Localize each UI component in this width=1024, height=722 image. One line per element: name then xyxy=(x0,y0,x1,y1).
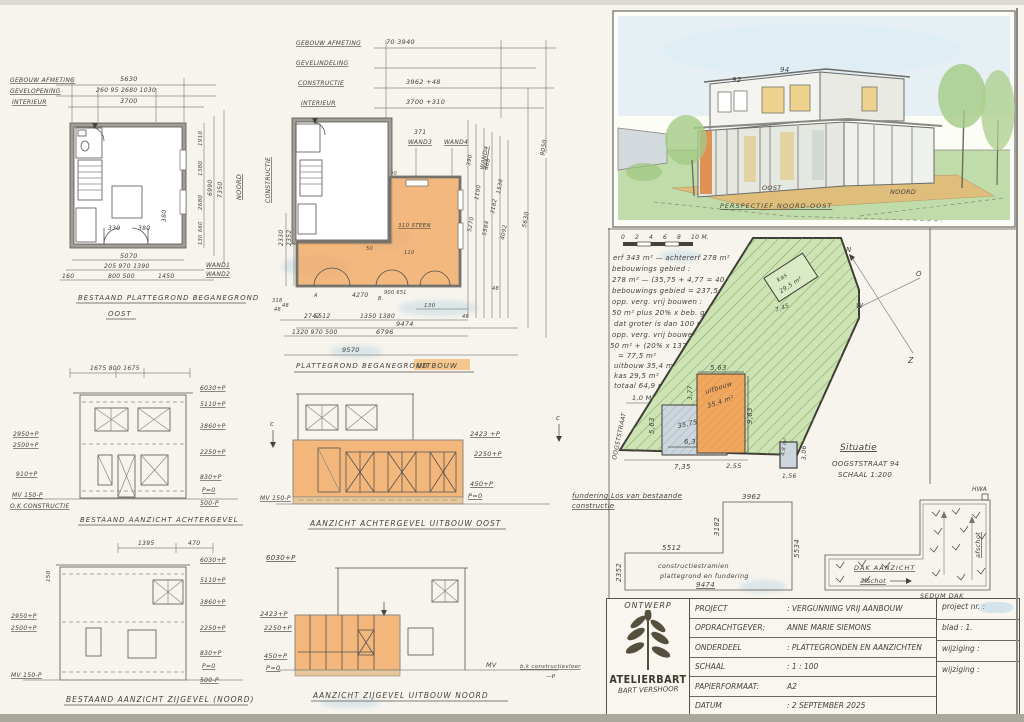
site-title: Situatie xyxy=(840,443,877,453)
dim: 1538 xyxy=(496,178,505,194)
top-dim: 1395 xyxy=(138,540,154,547)
level-label: 500-P xyxy=(200,500,219,507)
plan-uitbouw-beganegrond: GEBOUW AFMETING 70 3940 GEVELINDELING CO… xyxy=(256,28,562,380)
calc-line: erf 343 m² — achtererf 278 m² xyxy=(613,254,730,262)
dim: 1350 1380 xyxy=(360,313,395,320)
level-label: 910+P xyxy=(16,471,38,478)
elevC-left-labels: 2950+P 2500+P MV 150-P xyxy=(11,613,42,679)
dim: 5584 xyxy=(482,220,491,236)
tb-wijziging-1: wijziging : xyxy=(937,641,1019,662)
calc-line: uitbouw 35,4 m² xyxy=(614,362,676,370)
dim-value: 3700 +310 xyxy=(406,98,445,106)
tb-label: PROJECT xyxy=(695,604,787,613)
inner-dim: 380 xyxy=(138,225,150,232)
construction-note2: —P xyxy=(546,674,556,680)
sheet-bottom-edge xyxy=(0,714,1024,722)
dim: 660 xyxy=(198,222,204,232)
dim: 48 xyxy=(282,303,289,309)
section-mark-c: c xyxy=(556,414,560,422)
perspective-caption: PERSPECTIEF NOORD-OOST xyxy=(720,202,832,210)
dim: 150 xyxy=(46,570,52,582)
dim: 1450 xyxy=(158,273,174,280)
dim: 3,77 xyxy=(687,385,694,400)
calc-line: kas 29,5 m² xyxy=(614,372,659,380)
level-label: 2250+P xyxy=(474,450,502,458)
calc-line: 278 m² — (35,75 + 4,77 = 40,5) xyxy=(612,276,735,284)
elevB-uitbouw xyxy=(276,440,550,504)
mv-label: MV xyxy=(486,661,497,669)
dim: 7350 xyxy=(217,182,224,198)
dim: 318 xyxy=(272,298,282,304)
ontwerp-label: ONTWERP xyxy=(624,601,672,610)
dim: 9,63 xyxy=(746,407,754,424)
level-label: MV 150-P xyxy=(12,492,43,499)
tb-row-onderdeel: ONDERDEEL : PLATTEGRONDEN EN AANZICHTEN xyxy=(690,638,936,658)
compass-w: W xyxy=(856,302,864,310)
planA-subtitle: OOST xyxy=(108,310,132,318)
dim-row-label: INTERIEUR xyxy=(301,100,336,107)
ground-label-oost: OOST xyxy=(762,184,782,192)
construction-label: CONSTRUCTIE xyxy=(265,157,272,203)
dim: 5070 xyxy=(120,252,138,260)
dim-row-label: INTERIEUR xyxy=(12,99,47,106)
dim: 48 xyxy=(462,314,469,320)
dim: 900 651 xyxy=(384,290,407,296)
dim: 130 xyxy=(424,303,436,309)
level-label: 2250+P xyxy=(264,624,292,632)
elevD-left-labels: 6030+P 2423+P 2250+P 450+P P=0 xyxy=(260,554,296,672)
section-mark-c: c xyxy=(270,420,274,428)
fundering-inner: constructiestramien xyxy=(658,562,729,570)
scale-tick: 4 xyxy=(649,234,653,241)
level-label: 500-P xyxy=(200,677,219,684)
level-label: 2500+P xyxy=(11,625,37,632)
elevD-building xyxy=(278,568,558,676)
tb-value: ANNE MARIE SIEMONS xyxy=(787,623,871,632)
street-label: OOGSTSTRAAT xyxy=(611,411,628,460)
level-label: 6030+P xyxy=(200,557,226,564)
elevA-right-labels: 6030+P 5110+P 3860+P 2250+P 830+P P=0 50… xyxy=(200,385,226,507)
dim: 5534 xyxy=(793,539,801,558)
tb-label: SCHAAL xyxy=(695,662,787,671)
dim-row-label: CONSTRUCTIE xyxy=(298,80,344,87)
dim: 9570 xyxy=(342,346,360,354)
dim: 130 xyxy=(198,235,204,245)
level-label: 6030+P xyxy=(200,385,226,392)
sheet-top-edge xyxy=(0,0,1024,5)
dim: 371 xyxy=(414,129,426,136)
level-label: 2423+P xyxy=(260,610,288,618)
orientation-label: NOORD xyxy=(235,174,243,200)
tb-meta-label: wijziging : xyxy=(942,644,980,653)
dim: 1,56 xyxy=(782,473,797,480)
calc-line: opp. verg. vrij bouwen : xyxy=(612,298,702,306)
dim: 110 xyxy=(404,250,414,256)
tb-value: A2 xyxy=(787,682,797,691)
wall-label: WAND4 xyxy=(444,139,468,146)
atelier-brand-sub: BART VERSHOOR xyxy=(618,685,679,695)
site-caption: Situatie OOGSTSTRAAT 94 SCHAAL 1:200 xyxy=(832,443,899,479)
compass-z: Z xyxy=(907,356,914,365)
dim: 800 500 xyxy=(108,273,135,280)
dim: 5270 xyxy=(467,216,476,232)
dim: 9050 xyxy=(539,139,549,156)
level-label: 2423 +P xyxy=(470,430,500,438)
scale-tick: 6 xyxy=(663,234,667,241)
level-label: 2950+P xyxy=(11,613,37,620)
dim: 2352 xyxy=(615,563,623,582)
level-label: 5110+P xyxy=(200,577,226,584)
fundering-note: constructie xyxy=(572,502,614,510)
dim: 6796 xyxy=(376,328,394,336)
level-label: 450+P xyxy=(264,652,287,660)
sheet-right-edge xyxy=(1016,8,1018,714)
house-number: 94 xyxy=(780,66,790,74)
elevation-bestaand-zijgevel: 1395 470 150 2950+P 2500+P MV 150-P 6030… xyxy=(8,532,258,714)
dim: 48 xyxy=(274,307,281,313)
wall-label: WAND3 xyxy=(408,139,432,146)
level-label: P=0 xyxy=(468,492,482,500)
compass-n: N xyxy=(846,246,852,254)
construction-note: b.k constructievloer xyxy=(520,664,581,670)
ground-label-noord: NOORD xyxy=(890,188,916,196)
dim-row-label: GEBOUW AFMETING xyxy=(296,40,361,47)
level-label: 3860+P xyxy=(200,599,226,606)
north-arrow-icon xyxy=(849,254,855,261)
tb-project-nr: project nr. : xyxy=(937,599,1019,620)
tb-row-datum: DATUM : 2 SEPTEMBER 2025 xyxy=(690,697,936,716)
level-label: 2250+P xyxy=(200,449,226,456)
dim: 205 970 1390 xyxy=(104,263,150,270)
dim: 48 xyxy=(492,286,499,292)
planA-bottom-dims: 5070 205 970 1390 160 800 500 1450 xyxy=(60,252,214,280)
dim: 4092 xyxy=(500,224,509,240)
level-label: 2250+P xyxy=(200,625,226,632)
scale-tick: 10 M. xyxy=(691,234,709,241)
wall-label: WAND2 xyxy=(206,271,230,278)
roof-outline xyxy=(825,500,990,590)
scale-tick: 0 xyxy=(621,234,625,241)
tb-meta-label: blad : 1. xyxy=(942,623,973,632)
level-label: P=0 xyxy=(266,664,280,672)
dim: 1320 970 500 xyxy=(292,329,338,336)
dim: 5630 xyxy=(521,211,531,228)
scale-bar: 0 2 4 6 8 10 M. xyxy=(621,234,709,246)
tb-value: : PLATTEGRONDEN EN AANZICHTEN xyxy=(787,643,922,652)
title-block-logo-cell: ONTWERP ATELIERBART BART VERSHOOR xyxy=(607,599,690,715)
level-label: 450+P xyxy=(470,480,493,488)
tb-meta-label: wijziging : xyxy=(942,665,980,674)
tb-label: PAPIERFORMAAT: xyxy=(695,682,787,691)
fundering-schema: fundering Los van bestaande constructie … xyxy=(570,488,802,615)
fundering-note: fundering Los van bestaande xyxy=(572,492,682,500)
dim: 1910 xyxy=(198,131,204,146)
tb-label: OPDRACHTGEVER: xyxy=(695,623,787,632)
planA-title: BESTAAND PLATTEGROND BEGANEGROND xyxy=(78,294,259,302)
tb-value: : 2 SEPTEMBER 2025 xyxy=(787,701,865,710)
inner-dim: 330 xyxy=(108,225,120,232)
level-label: 5110+P xyxy=(200,401,226,408)
elevation-bestaand-achtergevel: 1675 800 1675 2950+P 2500+P 910+P MV 150… xyxy=(8,358,258,532)
dim-value: 70 3940 xyxy=(386,38,415,46)
dim-value: 3962 +48 xyxy=(406,78,441,86)
scale-tick: 2 xyxy=(635,234,639,241)
compass: N O W Z xyxy=(846,246,922,365)
dim: 3182 xyxy=(713,517,721,536)
calc-line: dat groter is dan 100 m². xyxy=(614,320,710,328)
hwa-label: HWA xyxy=(972,486,987,493)
dim: 9474 xyxy=(696,581,715,589)
site-scale: SCHAAL 1:200 xyxy=(838,471,892,479)
dim-value: 260 95 2680 1030 xyxy=(96,87,156,94)
dim: 7,35 xyxy=(674,463,691,471)
dim: 2330 xyxy=(278,230,285,246)
elevB-title: AANZICHT ACHTERGEVEL UITBOUW OOST xyxy=(309,519,502,528)
compass-o: O xyxy=(916,270,922,278)
dim: 5,63 xyxy=(648,417,656,434)
planB-bottom-dims: A 4270 900 651 B. 130 48 5512 2742 1350 … xyxy=(280,290,518,355)
dim: 3182 xyxy=(490,198,499,214)
tb-label: DATUM xyxy=(695,701,787,710)
elevA-title: BESTAAND AANZICHT ACHTERGEVEL xyxy=(80,516,239,524)
house-number: 92 xyxy=(732,76,742,84)
title-block-fields: PROJECT : VERGUNNING VRIJ AANBOUW OPDRAC… xyxy=(690,599,937,715)
dim: 3,06 xyxy=(801,445,808,460)
level-label: 830+P xyxy=(200,650,222,657)
elevC-title: BESTAAND AANZICHT ZIJGEVEL (NOORD) xyxy=(66,695,254,704)
planA-building: 330 380 380 xyxy=(70,123,186,248)
tb-label: ONDERDEEL xyxy=(695,643,787,652)
top-dim: 1675 800 1675 xyxy=(90,365,140,372)
planA-right-dims: 1910 1380 2680 660 130 6990 7350 NOORD xyxy=(198,110,243,264)
elevation-zijgevel-uitbouw: 6030+P 2423+P 2250+P 450+P P=0 xyxy=(258,540,590,714)
scale-tick: 8 xyxy=(677,234,681,241)
fundering-inner: plattegrond en fundering xyxy=(659,572,749,580)
planB-left-labels: CONSTRUCTIE 2330 2352 318 48 xyxy=(265,157,294,313)
level-label: O.K CONSTRUCTIE xyxy=(10,503,70,510)
plan-bestaand-beganegrond: GEBOUW AFMETING 5630 GEVELOPENING 260 95… xyxy=(8,58,260,344)
dim-value: 3700 xyxy=(120,97,138,105)
dim: 9474 xyxy=(396,320,414,328)
level-label: MV 150-P xyxy=(11,672,42,679)
planB-title-highlight: UITBOUW xyxy=(417,362,458,370)
dak-title: DAK AANZICHT xyxy=(854,564,915,572)
dim: 4270 xyxy=(352,292,368,299)
uitbouw-elevation xyxy=(295,615,400,670)
dim: 468 xyxy=(484,158,492,170)
calc-line: bebouwings gebied : xyxy=(612,265,691,273)
planB-title: PLATTEGROND BEGANEGROND UITBOUW xyxy=(294,359,474,372)
top-dim: 470 xyxy=(188,540,200,547)
calc-line: bebouwings gebied = 237,5 m² xyxy=(612,287,731,295)
planA-dim-rows: GEBOUW AFMETING 5630 GEVELOPENING 260 95… xyxy=(10,75,216,122)
elevA-building xyxy=(28,393,238,499)
planB-title-text: PLATTEGROND BEGANEGROND xyxy=(296,362,429,370)
material-note: 310 STEEN xyxy=(398,223,431,229)
elevD-title: AANZICHT ZIJGEVEL UITBOUW NOORD xyxy=(312,691,489,700)
level-label: 3860+P xyxy=(200,423,226,430)
tb-row-papierformaat: PAPIERFORMAAT: A2 xyxy=(690,677,936,697)
dim: 6990 xyxy=(207,180,214,196)
calc-line: = 77,5 m² xyxy=(618,352,656,360)
planA-wall-labels: WAND1 WAND2 xyxy=(206,262,230,278)
level-label: P=0 xyxy=(202,487,215,494)
site-address: OOGSTSTRAAT 94 xyxy=(832,460,899,468)
level-label: 2950+P xyxy=(13,431,39,438)
dim: 160 xyxy=(62,273,74,280)
elevA-left-labels: 2950+P 2500+P 910+P MV 150-P O.K CONSTRU… xyxy=(10,431,70,510)
wall-label: WAND1 xyxy=(206,262,230,269)
hwa-drain-icon xyxy=(982,494,988,500)
level-label: 6030+P xyxy=(266,554,296,562)
dim: 5512 xyxy=(662,544,681,552)
tb-value: : 1 : 100 xyxy=(787,662,818,671)
dim-row-label: GEVELINDELING xyxy=(296,60,349,67)
plant-logo-icon xyxy=(619,610,677,674)
tb-wijziging-2: wijziging : xyxy=(937,662,1019,715)
title-block: ONTWERP ATELIERBART BART VERSHOOR PROJEC… xyxy=(606,598,1020,716)
planB-top-labels: 371 WAND3 WAND4 WAND4 90 xyxy=(390,129,490,177)
architectural-sheet: GEBOUW AFMETING 5630 GEVELOPENING 260 95… xyxy=(0,0,1024,722)
perspective-sketch: 92 94 xyxy=(612,10,1016,228)
dim: 2680 xyxy=(198,195,204,210)
dim: 390 xyxy=(466,154,474,166)
dim-value: 5630 xyxy=(120,75,138,83)
dim: 1190 xyxy=(474,184,483,200)
dak-aanzicht: HWA DAK AANZICHT afschot afschot SEDUM D… xyxy=(812,480,1020,608)
dim: 50 xyxy=(366,246,373,252)
tb-row-project: PROJECT : VERGUNNING VRIJ AANBOUW xyxy=(690,599,936,619)
tb-row-opdrachtgever: OPDRACHTGEVER: ANNE MARIE SIEMONS xyxy=(690,619,936,639)
elevB-existing xyxy=(296,394,414,440)
roof-inner-outline xyxy=(829,504,986,586)
building-outline xyxy=(72,125,184,246)
level-label: 2500+P xyxy=(13,442,39,449)
dim-row-label: GEVELOPENING xyxy=(10,88,61,95)
afschot-label: afschot xyxy=(860,577,886,585)
dim-row-label: GEBOUW AFMETING xyxy=(10,77,75,84)
dim: 1380 xyxy=(198,161,204,176)
dim: 5,63 xyxy=(710,364,727,372)
tb-row-schaal: SCHAAL : 1 : 100 xyxy=(690,658,936,678)
inner-dim: 380 xyxy=(161,210,168,222)
level-label: MV 150-P xyxy=(260,495,291,502)
elevation-achtergevel-uitbouw: c c 2423 +P 2250+P 450+P P xyxy=(258,372,570,540)
section-mark: A xyxy=(313,293,318,299)
dim: 3962 xyxy=(742,493,761,501)
title-block-meta: project nr. : blad : 1. wijziging : wijz… xyxy=(937,599,1019,715)
dim: 2742 xyxy=(304,313,320,320)
tb-value: : VERGUNNING VRIJ AANBOUW xyxy=(787,604,903,613)
planB-building: 310 STEEN 50 110 xyxy=(292,118,463,286)
smudge xyxy=(979,602,1013,613)
dim: 2,55 xyxy=(726,462,742,470)
level-label: 830+P xyxy=(200,474,222,481)
planB-right-dims: 390 468 1190 1538 3182 4092 5270 5584 56… xyxy=(466,88,549,338)
elevC-right-labels: 6030+P 5110+P 3860+P 2250+P 830+P P=0 50… xyxy=(200,557,226,684)
level-label: P=0 xyxy=(202,663,215,670)
tb-blad: blad : 1. xyxy=(937,620,1019,641)
section-mark: B. xyxy=(378,296,384,302)
afschot-label: afschot xyxy=(974,532,982,558)
